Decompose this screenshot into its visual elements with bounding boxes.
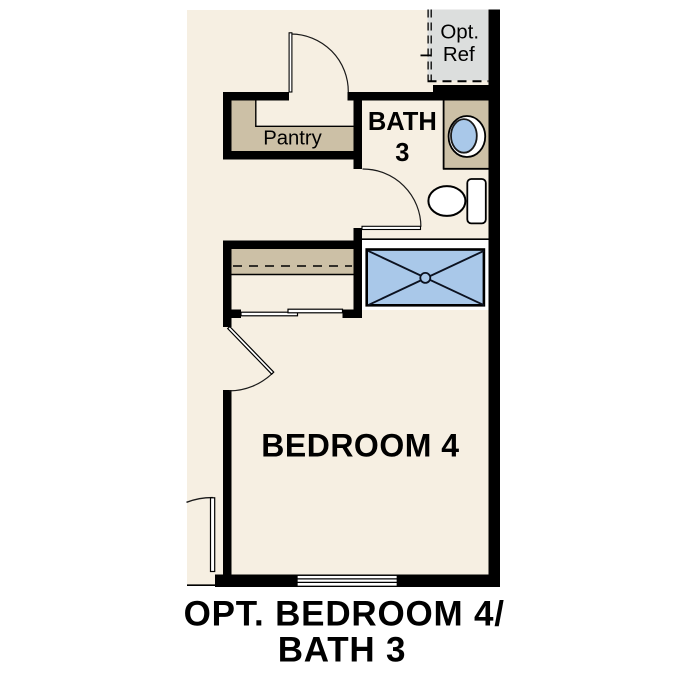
svg-text:Pantry: Pantry — [263, 127, 322, 149]
svg-text:Ref: Ref — [443, 43, 475, 66]
svg-text:BEDROOM 4: BEDROOM 4 — [261, 427, 459, 463]
svg-text:3: 3 — [395, 139, 409, 167]
svg-text:BATH: BATH — [368, 108, 437, 136]
svg-text:OPT. BEDROOM 4/: OPT. BEDROOM 4/ — [184, 595, 505, 634]
svg-text:BATH 3: BATH 3 — [278, 630, 407, 669]
svg-text:Opt.: Opt. — [440, 20, 479, 43]
